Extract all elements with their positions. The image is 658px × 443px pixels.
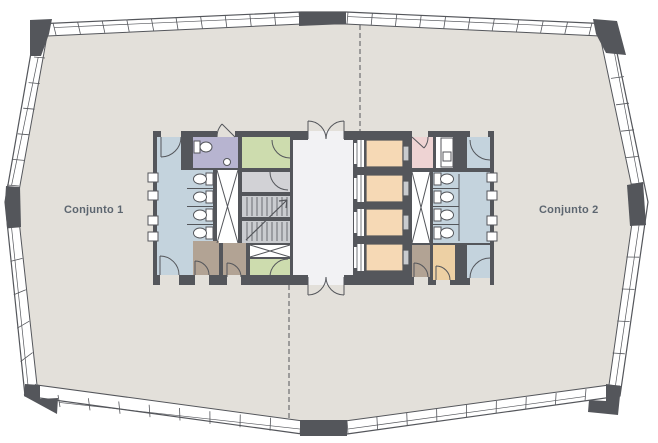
room-elevator-1 (366, 140, 403, 167)
service-counter-icon (441, 138, 453, 167)
elevator-counterweight (403, 146, 409, 161)
elevator-door-recess (354, 244, 364, 271)
pillar-right-mid (627, 182, 646, 226)
elevator-door-recess (354, 140, 364, 167)
unit-label-conjunto-1: Conjunto 1 (64, 204, 123, 216)
core (148, 121, 497, 295)
room-closet-a (193, 241, 219, 275)
pillar-bottom-left (24, 384, 58, 414)
room-elevator-4 (366, 244, 403, 271)
elevator-counterweight (403, 181, 409, 196)
elevator-counterweight (403, 250, 409, 265)
floor-plan-drawing (0, 0, 658, 443)
elevator-door-recess (354, 175, 364, 202)
elevator-counterweight (403, 215, 409, 230)
pillar-top-center (299, 12, 346, 26)
unit-label-conjunto-2: Conjunto 2 (539, 204, 598, 216)
floor-drain-icon (224, 159, 231, 166)
room-elevator-2 (366, 175, 403, 202)
room-closet-b (223, 243, 246, 275)
pillar-left-mid (5, 186, 21, 228)
pillar-bottom-center (300, 420, 347, 436)
elevator-door-recess (354, 209, 364, 236)
room-green-top-left (242, 137, 290, 168)
room-elevator-3 (366, 209, 403, 236)
floor-plan: Conjunto 1 Conjunto 2 (0, 0, 658, 443)
room-elevator-lobby (293, 140, 353, 275)
room-pink (412, 137, 433, 168)
